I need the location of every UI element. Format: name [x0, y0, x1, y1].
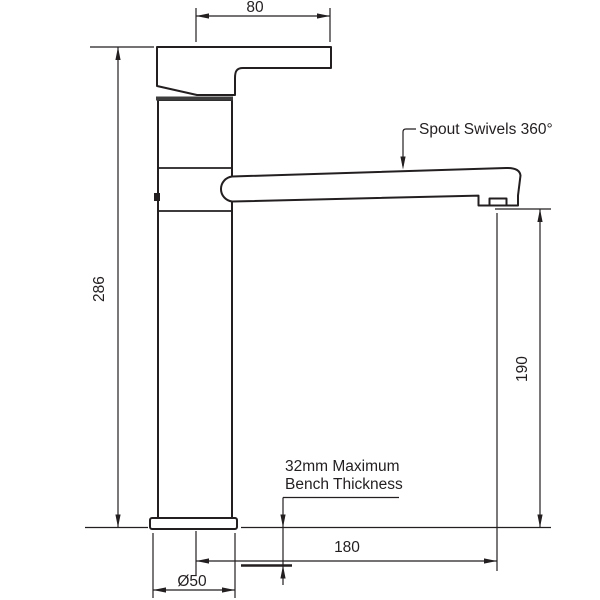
arrowhead-bottom — [537, 515, 542, 528]
arrowhead-bottom — [115, 515, 120, 528]
leader-arrowhead — [400, 157, 405, 170]
dimension-spout-clearance: 190 — [495, 209, 551, 528]
dimension-base-diameter: Ø50 — [153, 533, 235, 598]
dimension-label-diameter-50: Ø50 — [177, 573, 207, 590]
spout-aerator — [490, 199, 507, 206]
tap-dimension-drawing: 80 286 Spout Swivels 360° 190 32mm Maxim… — [0, 0, 600, 600]
arrowhead-left — [196, 13, 209, 18]
tap-spout — [221, 168, 521, 206]
arrowhead-up — [280, 566, 285, 579]
arrowhead-top — [115, 47, 120, 60]
dimension-handle-width: 80 — [196, 0, 330, 42]
dimension-spout-reach: 180 — [196, 213, 497, 575]
bench-reference-lines — [241, 528, 551, 566]
drawing-canvas: 80 286 Spout Swivels 360° 190 32mm Maxim… — [0, 0, 600, 600]
arrowhead-right — [317, 13, 330, 18]
faucet-outline — [150, 47, 521, 529]
bench-note-line2: Bench Thickness — [285, 476, 403, 493]
dimension-label-80: 80 — [246, 0, 264, 16]
arrowhead-top — [537, 209, 542, 222]
bench-thickness-annotation: 32mm Maximum Bench Thickness — [280, 458, 403, 585]
arrowhead-left — [153, 587, 166, 592]
arrowhead-right — [222, 587, 235, 592]
arrowhead-right — [484, 558, 497, 563]
arrowhead-down — [280, 515, 285, 528]
set-screw-detail — [154, 193, 160, 201]
dimension-total-height: 286 — [85, 47, 154, 528]
spout-swivel-annotation: Spout Swivels 360° — [400, 121, 552, 170]
bench-note-line1: 32mm Maximum — [285, 458, 400, 475]
tap-base-flange — [150, 518, 237, 529]
arrowhead-left — [196, 558, 209, 563]
dimension-label-190: 190 — [514, 356, 531, 382]
tap-lever-handle — [157, 47, 331, 95]
tap-body-column — [158, 100, 232, 518]
spout-swivel-label: Spout Swivels 360° — [419, 121, 553, 138]
dimension-label-180: 180 — [334, 539, 360, 556]
leader-line — [403, 129, 416, 166]
dimension-label-286: 286 — [91, 276, 108, 302]
